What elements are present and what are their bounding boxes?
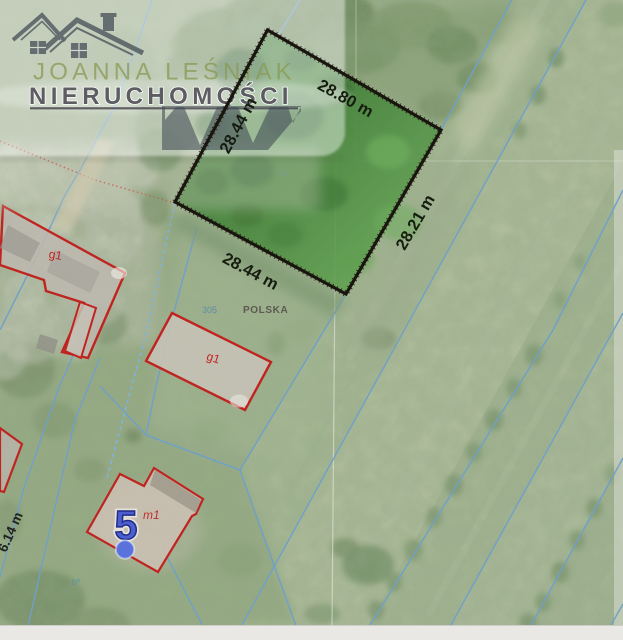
svg-text:POLSKA: POLSKA [243, 305, 288, 316]
svg-text:g1: g1 [48, 247, 64, 263]
svg-text:305: 305 [202, 305, 217, 315]
svg-text:b*: b* [72, 577, 81, 587]
svg-text:m1: m1 [143, 508, 160, 522]
svg-text:JOANNA LEŚNIAK: JOANNA LEŚNIAK [33, 58, 296, 86]
